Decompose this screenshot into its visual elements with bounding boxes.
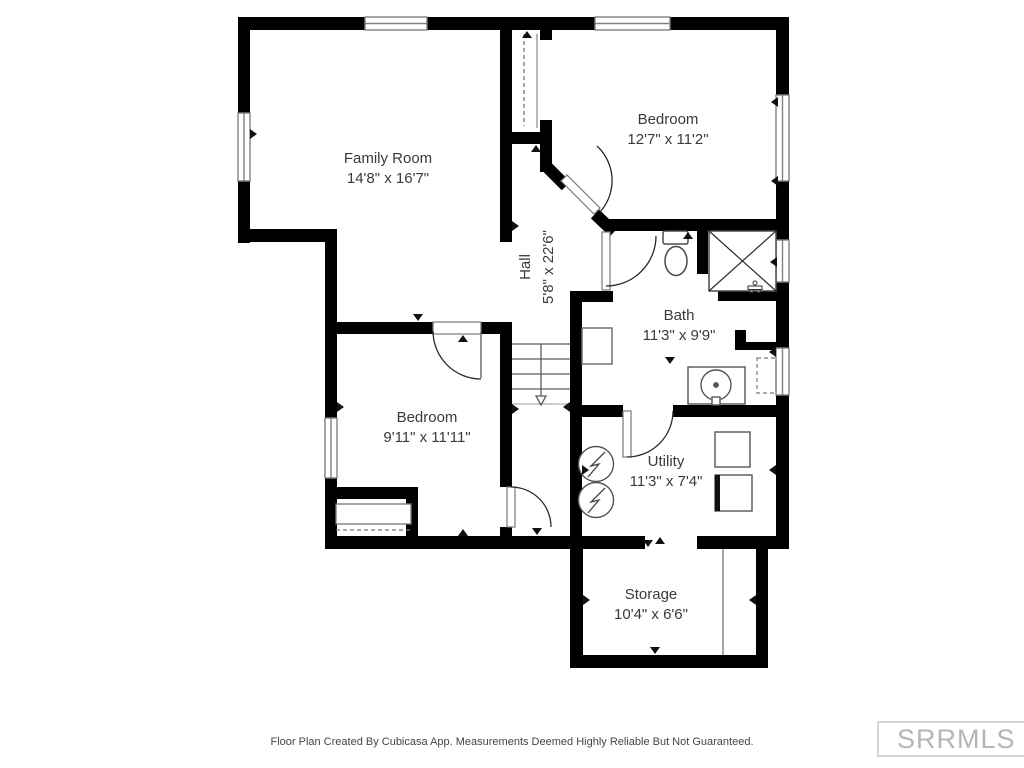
bath-cabinet xyxy=(582,328,612,364)
door-bath xyxy=(602,232,656,290)
floorplan-page: Family Room 14'8" x 16'7" Bedroom 12'7" … xyxy=(0,0,1024,768)
bath-dashed-cabinet xyxy=(757,358,776,393)
window xyxy=(776,240,789,282)
door-utility xyxy=(623,411,673,457)
water-heaters xyxy=(579,447,614,518)
walls xyxy=(238,17,789,668)
window xyxy=(365,17,427,30)
door-hall-south xyxy=(507,487,551,527)
door-bedroom-lower xyxy=(433,322,481,379)
window xyxy=(238,113,250,181)
mls-watermark: SRRMLS xyxy=(877,721,1024,757)
window xyxy=(776,95,789,181)
doors xyxy=(433,146,673,527)
closet-shelf xyxy=(336,504,411,530)
window xyxy=(776,348,789,395)
mls-watermark-text: SRRMLS xyxy=(897,724,1016,755)
shower xyxy=(709,231,776,292)
washer xyxy=(715,432,750,467)
stairs-down xyxy=(512,344,570,405)
floorplan-drawing xyxy=(0,0,1024,768)
dryer xyxy=(715,475,752,511)
door-bedroom-upper xyxy=(561,146,612,214)
vanity-sink xyxy=(688,367,745,405)
window xyxy=(325,418,337,478)
footer-disclaimer: Floor Plan Created By Cubicasa App. Meas… xyxy=(0,736,1024,748)
stairs-up-corridor xyxy=(524,34,537,128)
window xyxy=(595,17,670,30)
water-heater-icon xyxy=(579,483,614,518)
water-heater-icon xyxy=(579,447,614,482)
